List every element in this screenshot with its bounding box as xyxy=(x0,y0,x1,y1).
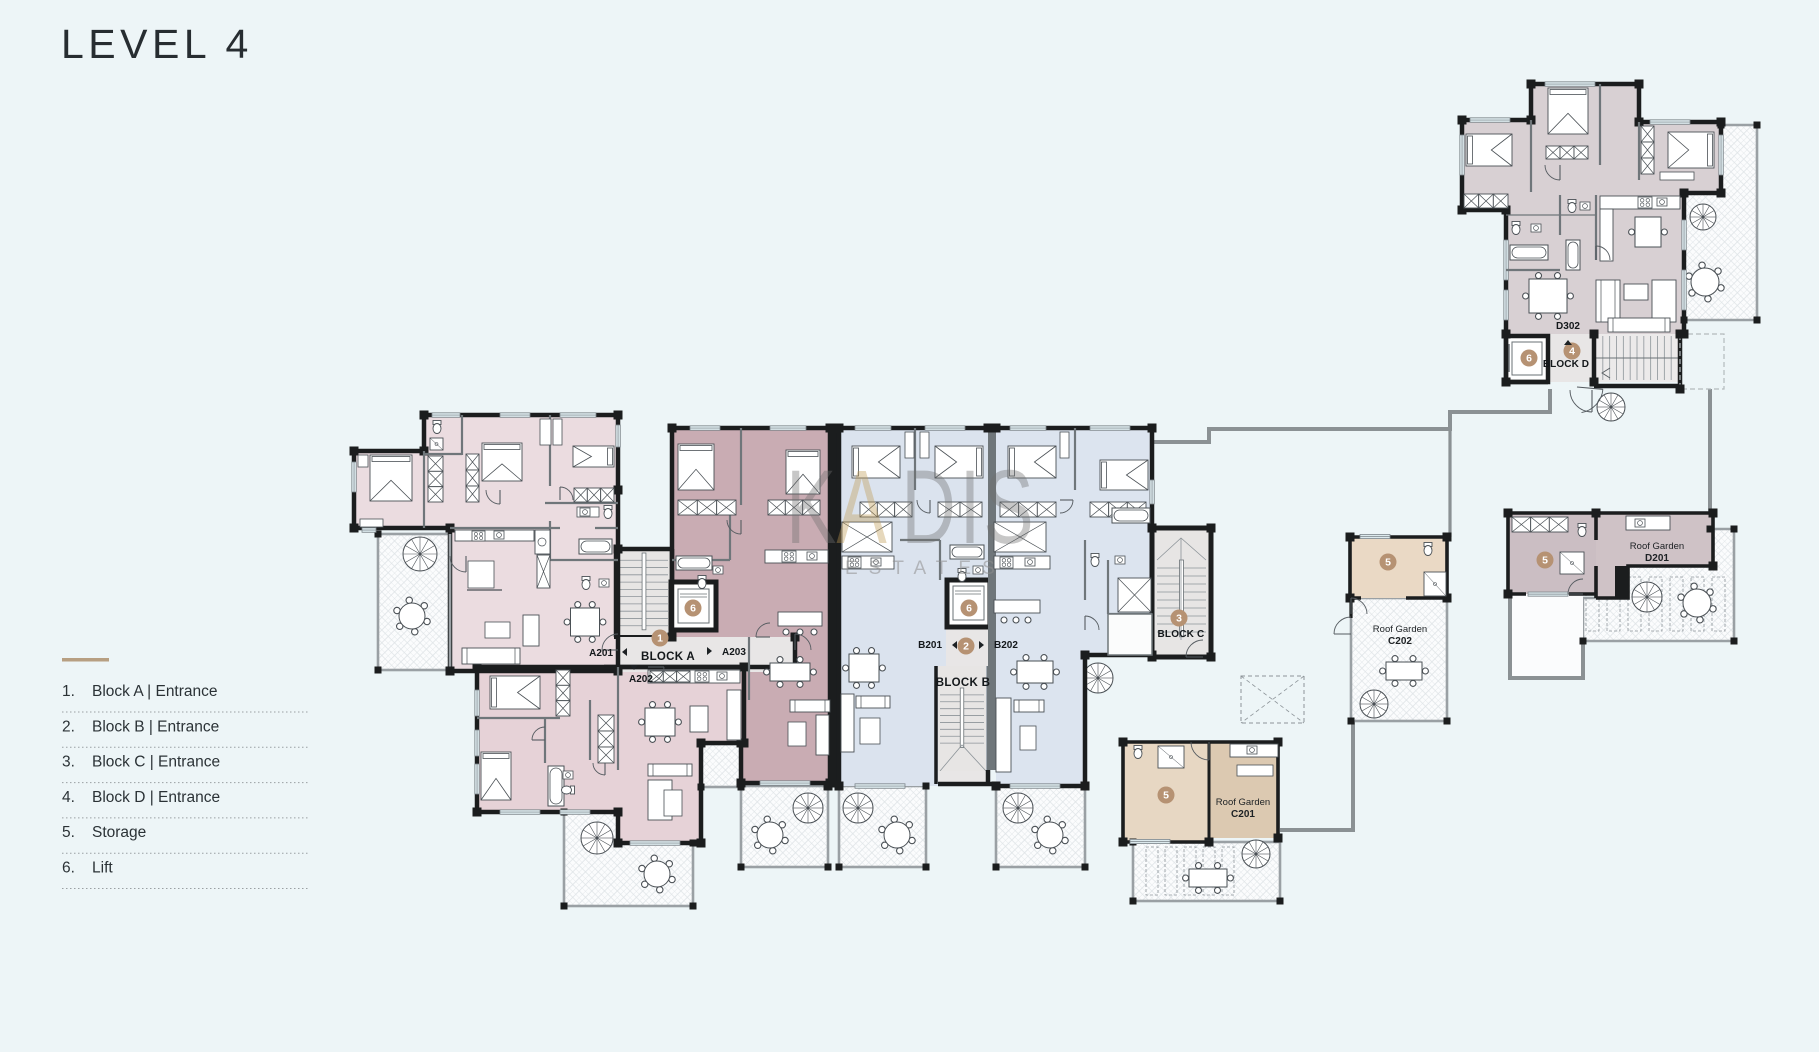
svg-text:D: D xyxy=(901,449,956,566)
svg-text:2.: 2. xyxy=(62,718,75,735)
svg-text:5: 5 xyxy=(1163,790,1169,802)
svg-text:A202: A202 xyxy=(629,674,653,685)
svg-text:A203: A203 xyxy=(722,647,746,658)
svg-text:4.: 4. xyxy=(62,789,75,806)
svg-text:B202: B202 xyxy=(994,640,1018,651)
svg-text:Block D | Entrance: Block D | Entrance xyxy=(92,789,220,806)
svg-text:BLOCK C: BLOCK C xyxy=(1158,629,1205,640)
svg-text:3: 3 xyxy=(1176,613,1182,625)
svg-text:5: 5 xyxy=(1542,555,1548,567)
svg-text:Lift: Lift xyxy=(92,860,113,877)
svg-text:4: 4 xyxy=(1569,346,1575,358)
svg-text:Roof Garden: Roof Garden xyxy=(1373,624,1427,635)
svg-text:2: 2 xyxy=(963,641,969,653)
svg-text:Block C | Entrance: Block C | Entrance xyxy=(92,754,220,771)
svg-text:K: K xyxy=(786,449,836,566)
svg-text:LEVEL 4: LEVEL 4 xyxy=(61,21,253,67)
svg-text:C202: C202 xyxy=(1388,636,1412,647)
svg-text:ESTATES: ESTATES xyxy=(845,558,1006,579)
svg-text:1: 1 xyxy=(657,633,663,645)
svg-text:6.: 6. xyxy=(62,860,75,877)
svg-text:BLOCK D: BLOCK D xyxy=(1543,359,1589,370)
svg-text:5: 5 xyxy=(1385,557,1391,569)
svg-text:5.: 5. xyxy=(62,824,75,841)
svg-text:Roof Garden: Roof Garden xyxy=(1630,541,1684,552)
svg-text:6: 6 xyxy=(690,603,696,615)
svg-text:D201: D201 xyxy=(1645,553,1669,564)
svg-text:Roof Garden: Roof Garden xyxy=(1216,797,1270,808)
svg-text:Block B | Entrance: Block B | Entrance xyxy=(92,718,219,735)
svg-text:6: 6 xyxy=(1526,353,1532,365)
svg-text:1.: 1. xyxy=(62,683,75,700)
svg-text:S: S xyxy=(983,449,1033,566)
svg-text:6: 6 xyxy=(966,603,972,615)
svg-text:Storage: Storage xyxy=(92,824,146,841)
svg-text:BLOCK A: BLOCK A xyxy=(641,651,695,663)
svg-text:B201: B201 xyxy=(918,640,942,651)
svg-text:I: I xyxy=(960,449,981,566)
svg-text:D302: D302 xyxy=(1556,321,1580,332)
svg-text:3.: 3. xyxy=(62,754,75,771)
svg-text:BLOCK B: BLOCK B xyxy=(936,677,991,689)
svg-text:A201: A201 xyxy=(589,648,613,659)
svg-text:C201: C201 xyxy=(1231,809,1255,820)
svg-text:A: A xyxy=(836,449,886,566)
svg-text:Block A | Entrance: Block A | Entrance xyxy=(92,683,218,700)
